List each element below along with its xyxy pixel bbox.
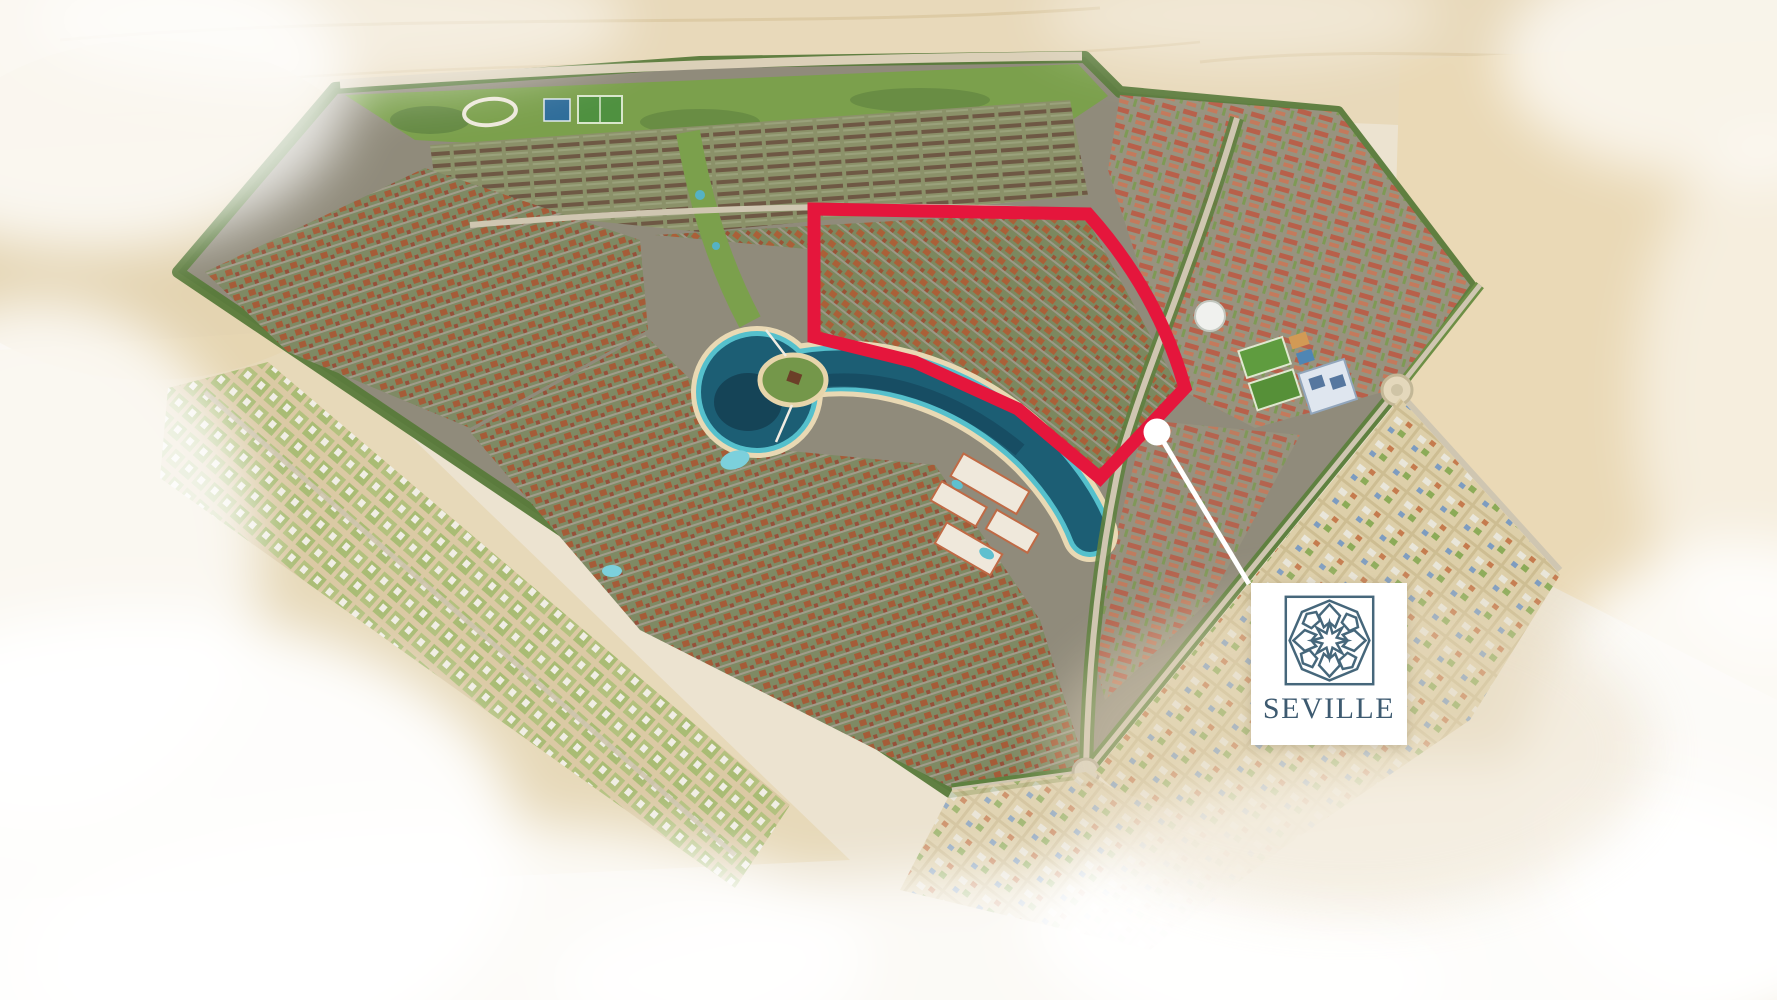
- tennis-courts: [544, 99, 570, 121]
- map-canvas: [0, 0, 1777, 1000]
- project-badge[interactable]: SEVILLE: [1251, 583, 1407, 745]
- seville-logo-icon: [1282, 593, 1377, 688]
- marker-dot[interactable]: [1144, 419, 1171, 446]
- masterplan-map: SEVILLE: [0, 0, 1777, 1000]
- project-name-label: SEVILLE: [1263, 694, 1395, 724]
